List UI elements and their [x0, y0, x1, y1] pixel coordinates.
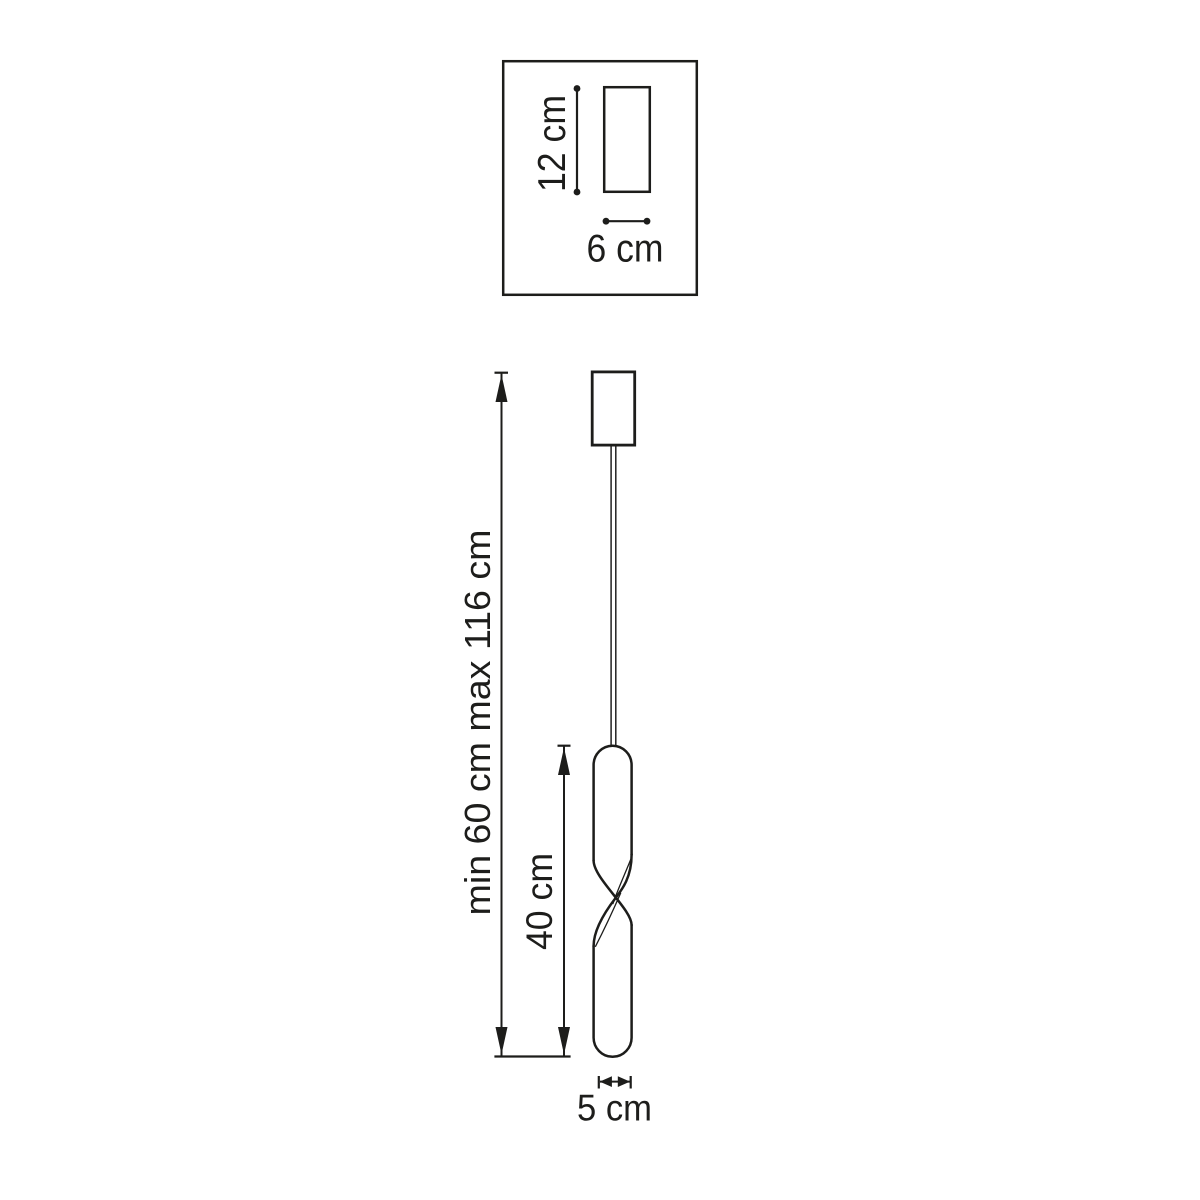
svg-text:min 60 cm max 116 cm: min 60 cm max 116 cm — [457, 530, 498, 916]
svg-text:6 cm: 6 cm — [587, 228, 664, 271]
svg-text:12 cm: 12 cm — [531, 95, 574, 192]
svg-text:40 cm: 40 cm — [519, 853, 560, 950]
svg-text:5 cm: 5 cm — [577, 1088, 652, 1129]
